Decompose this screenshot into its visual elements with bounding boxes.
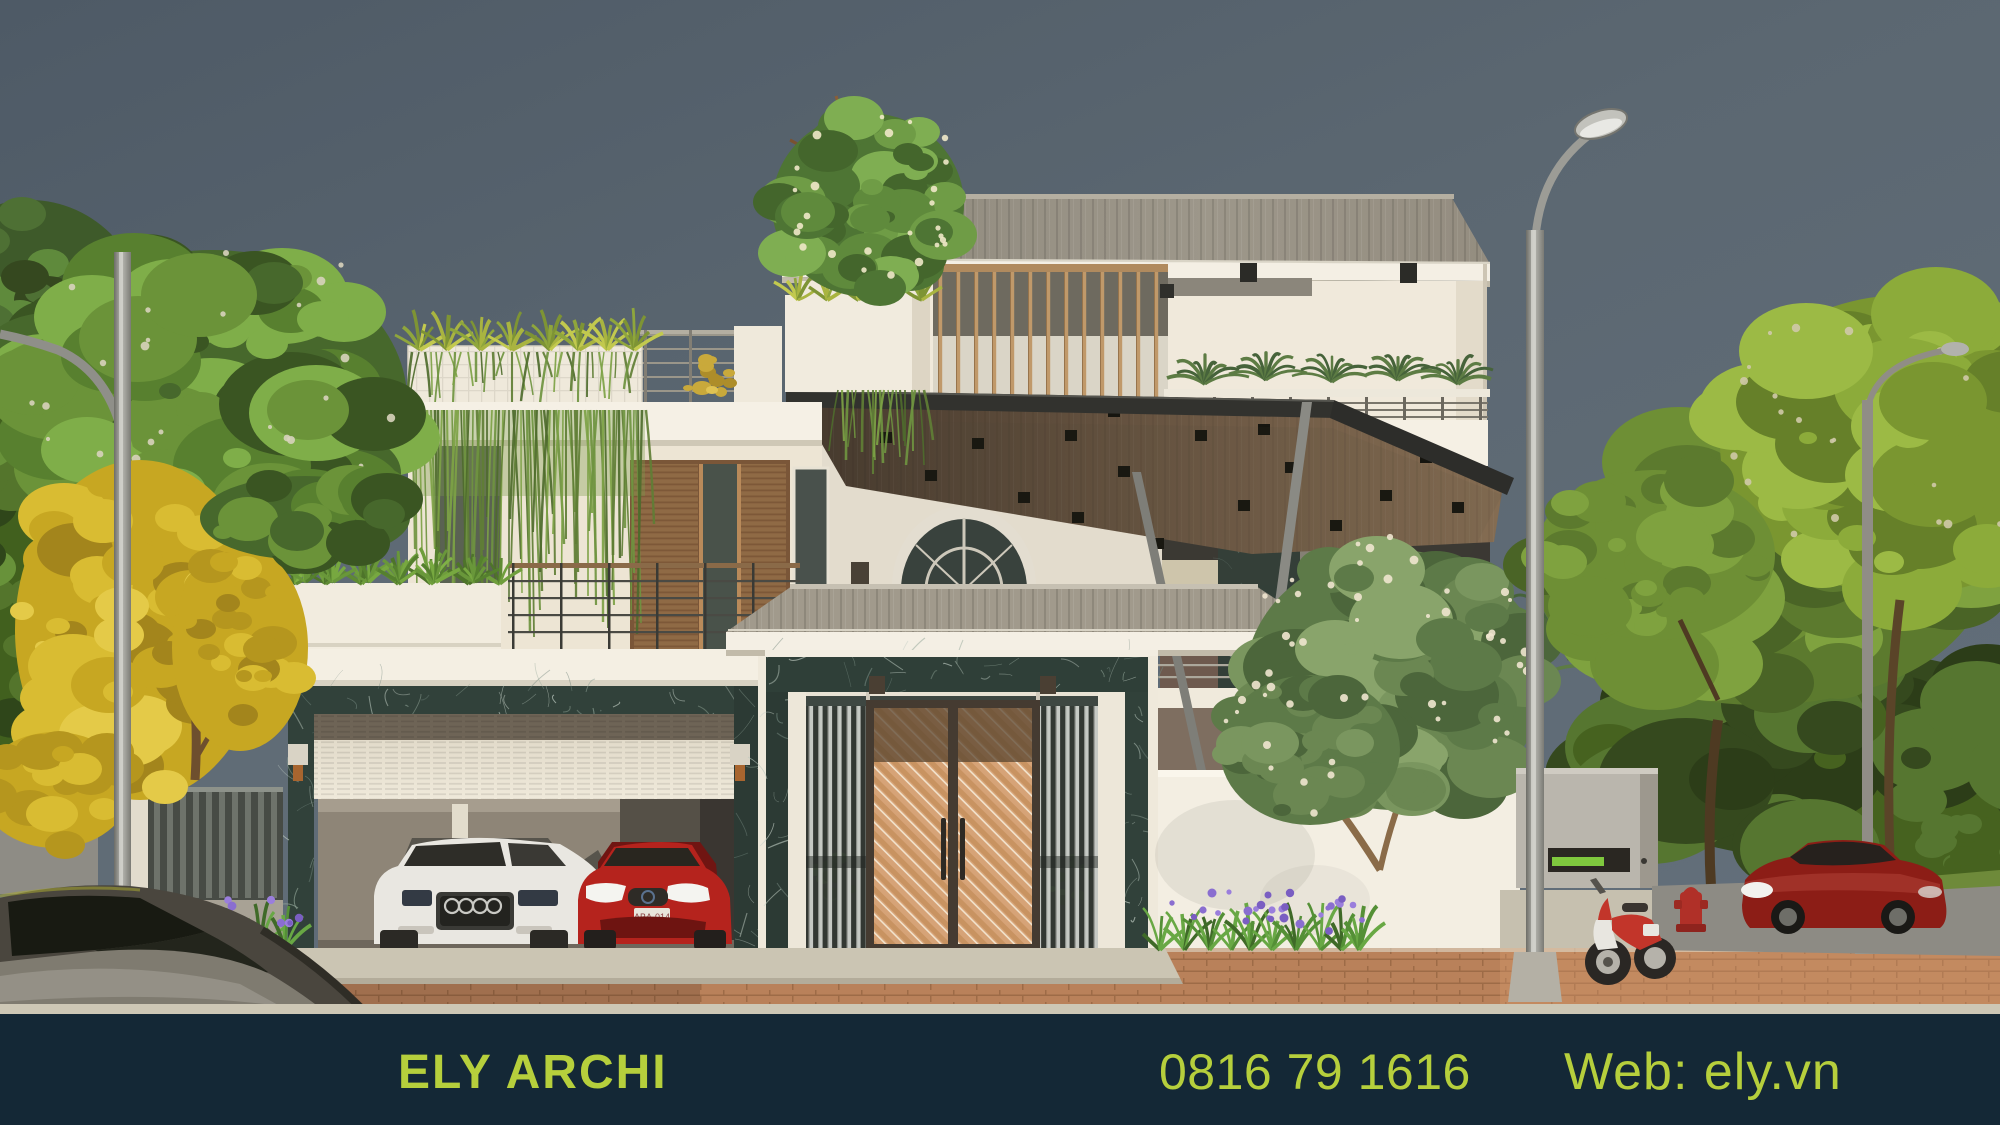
svg-text:ELY ARCHI: ELY ARCHI — [398, 1046, 668, 1099]
svg-text:Web: ely.vn: Web: ely.vn — [1564, 1043, 1842, 1101]
svg-text:0816 79 1616: 0816 79 1616 — [1159, 1044, 1471, 1100]
